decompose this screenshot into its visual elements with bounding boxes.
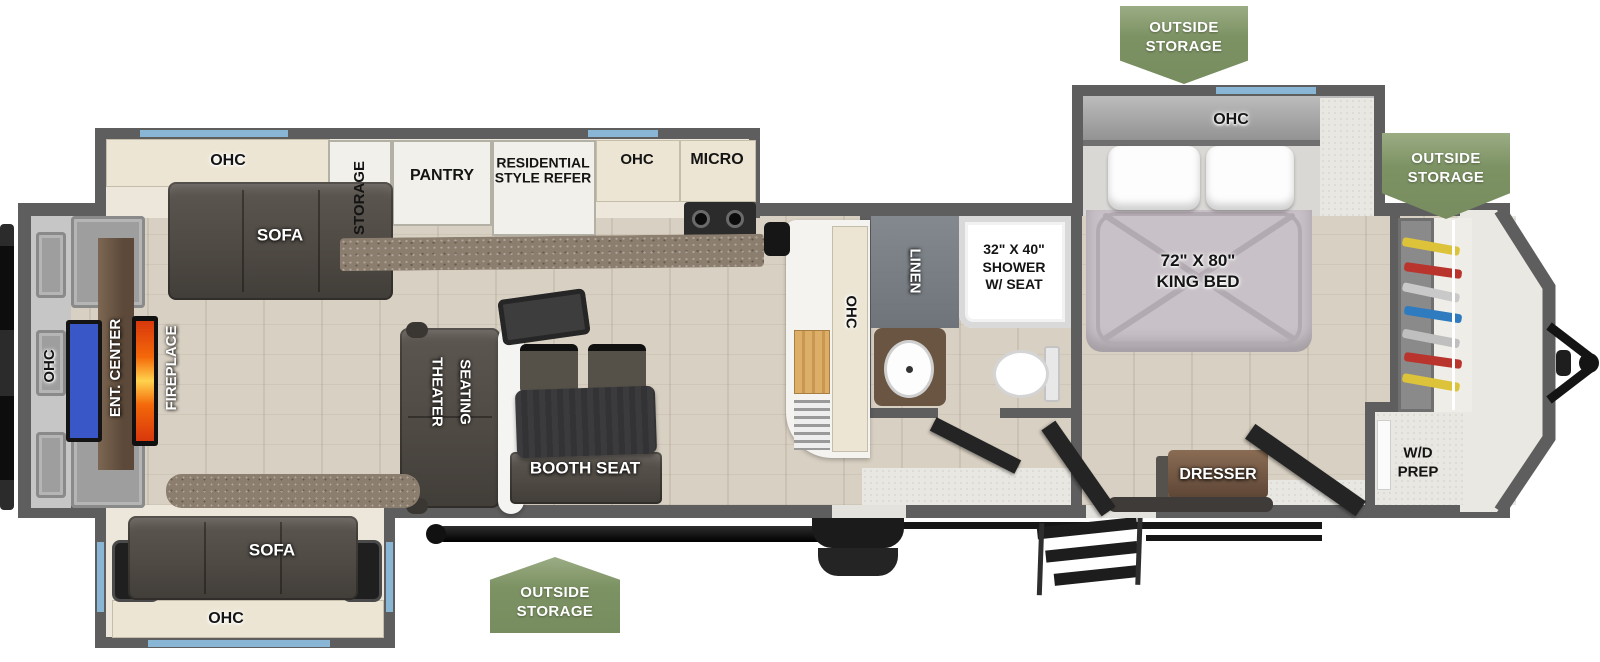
label-linen: LINEN <box>906 249 923 294</box>
label-shower-line3: W/ SEAT <box>983 276 1046 294</box>
label-shower-line1: 32" X 40" <box>983 241 1046 259</box>
label-king-bed-line2: KING BED <box>1156 271 1239 292</box>
closet-pole <box>1452 220 1455 410</box>
badge-text-line2: STORAGE <box>517 602 594 622</box>
rear-bumper-block-bottom <box>0 396 14 480</box>
label-wd-line2: PREP <box>1398 463 1439 482</box>
label-rear-ohc: OHC <box>42 349 59 382</box>
fold-out-steps <box>1034 513 1145 599</box>
burner <box>726 210 744 228</box>
tv-screen <box>66 320 102 442</box>
bed-bench <box>1108 497 1273 512</box>
badge-text-line2: STORAGE <box>1408 168 1485 188</box>
hanging-clothes <box>1400 238 1466 398</box>
label-theater-line1: THEATER <box>428 357 445 427</box>
galley-ohc-cabinet <box>596 140 680 202</box>
fireplace-flame <box>136 321 154 441</box>
badge-text-line1: OUTSIDE <box>1411 149 1480 169</box>
label-pantry: PANTRY <box>410 167 474 185</box>
label-counter-ohc: OHC <box>842 295 859 328</box>
label-rear-sofa-ohc: OHC <box>208 610 244 628</box>
kitchen-counter <box>340 234 764 271</box>
pillow <box>1206 146 1294 210</box>
rear-bumper-block-top <box>0 246 14 330</box>
awning-rail <box>1146 535 1322 541</box>
outside-storage-badge-bottom: OUTSIDE STORAGE <box>490 557 620 633</box>
booth-chair <box>520 344 578 394</box>
label-king-bed-line1: 72" X 80" <box>1156 250 1239 271</box>
label-fireplace: FIREPLACE <box>164 325 181 410</box>
rear-cabinet-panel <box>36 432 66 498</box>
sink-drainer <box>794 400 830 450</box>
awning-tube-cap <box>426 524 446 544</box>
rv-floorplan: OUTSIDE STORAGE OUTSIDE STORAGE OUTSIDE … <box>0 0 1600 662</box>
label-booth-seat: BOOTH SEAT <box>530 460 640 479</box>
burner <box>692 210 710 228</box>
bath-faucet <box>906 366 913 373</box>
label-ent-center: ENT. CENTER <box>108 319 125 417</box>
trash-bin <box>764 222 790 256</box>
window <box>140 130 288 137</box>
badge-text-line2: STORAGE <box>1146 37 1223 57</box>
label-theater-line2: SEATING <box>456 359 473 425</box>
window <box>148 640 330 647</box>
label-shower-line2: SHOWER <box>983 258 1046 276</box>
label-rear-sofa: SOFA <box>249 542 295 561</box>
window <box>1216 87 1316 94</box>
window <box>386 542 393 612</box>
window <box>588 130 658 137</box>
label-kitchen-ohc: OHC <box>210 152 246 170</box>
label-kitchen-sofa: SOFA <box>257 227 303 246</box>
toilet-bowl <box>993 350 1049 398</box>
wd-closet-door <box>1377 420 1391 490</box>
label-refer-line2: STYLE REFER <box>495 171 591 186</box>
label-galley-ohc: OHC <box>620 152 653 169</box>
entry-door-gap <box>832 505 906 518</box>
label-king-bed: 72" X 80" KING BED <box>1156 250 1239 293</box>
badge-text-line1: OUTSIDE <box>1149 18 1218 38</box>
label-storage: STORAGE <box>352 161 369 235</box>
label-shower: 32" X 40" SHOWER W/ SEAT <box>983 241 1046 294</box>
bath-wall-bottom-left <box>860 408 938 418</box>
entry-steps <box>812 518 904 580</box>
wd-closet-wall-left <box>1365 402 1375 505</box>
window <box>97 542 104 612</box>
label-micro: MICRO <box>690 151 743 169</box>
badge-text-line1: OUTSIDE <box>520 583 589 603</box>
label-refer: RESIDENTIAL STYLE REFER <box>495 156 591 187</box>
bath-wall-bottom-right <box>1000 408 1082 418</box>
rear-sofa <box>128 516 358 600</box>
ohc-counter-cabinet <box>832 226 868 452</box>
booth-table <box>515 386 657 459</box>
cutting-board <box>794 330 830 394</box>
bedroom-slide-side-panel <box>1320 98 1374 216</box>
label-wd-prep: W/D PREP <box>1398 444 1439 482</box>
label-dresser: DRESSER <box>1179 466 1256 484</box>
micro-cabinet <box>680 140 756 202</box>
rear-cabinet-panel <box>36 232 66 298</box>
label-refer-line1: RESIDENTIAL <box>495 156 591 171</box>
rear-sofa-counter <box>166 474 420 508</box>
awning-tube <box>436 526 831 542</box>
entry-landing-floor <box>862 468 1074 505</box>
outside-storage-badge-top: OUTSIDE STORAGE <box>1120 6 1248 84</box>
pillow <box>1108 146 1200 210</box>
rear-sofa-ohc <box>112 600 384 638</box>
label-wd-line1: W/D <box>1398 444 1439 463</box>
label-bedroom-ohc: OHC <box>1213 111 1249 129</box>
